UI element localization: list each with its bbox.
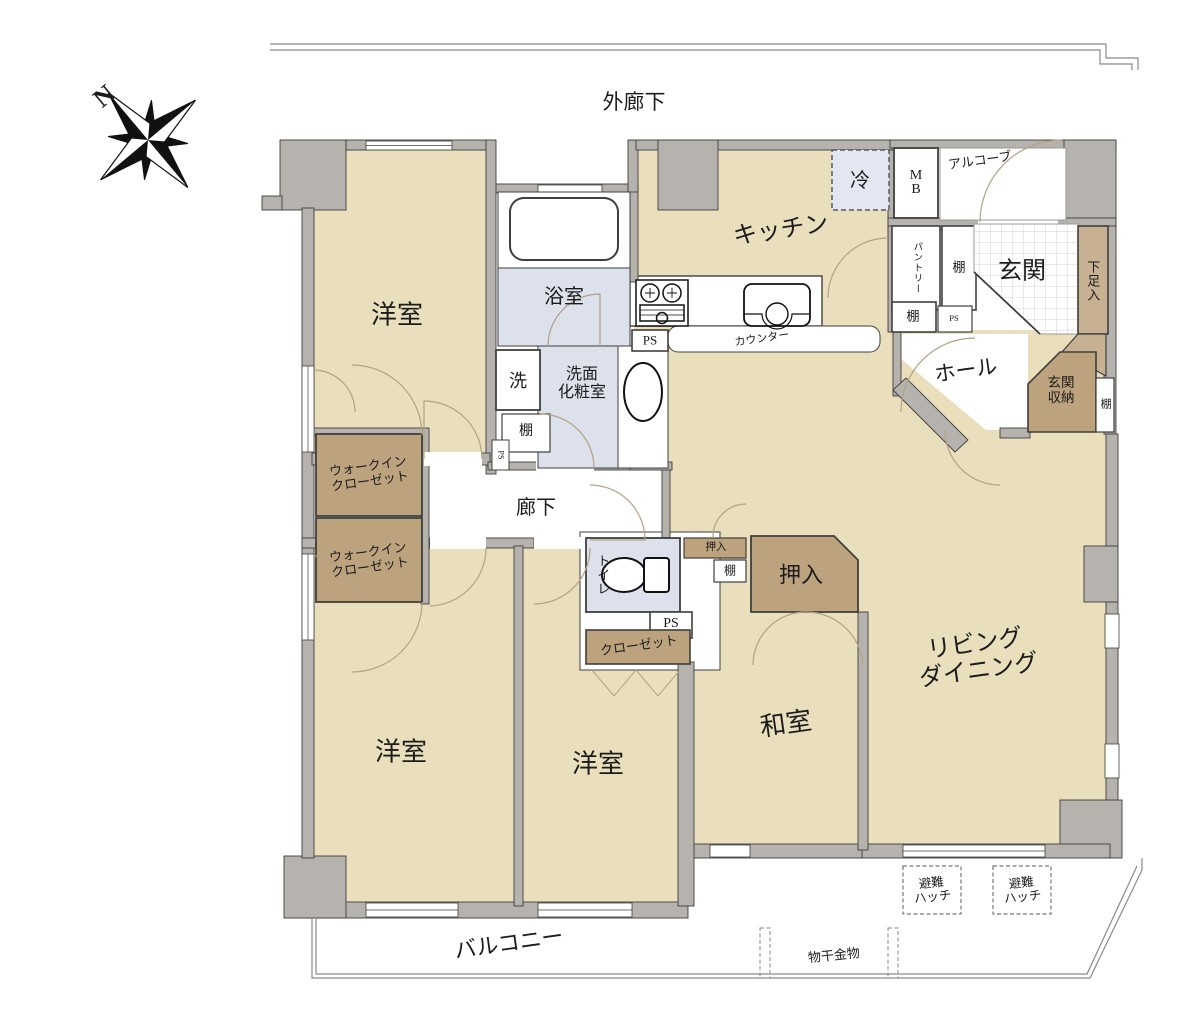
entrance-label: 玄関: [998, 259, 1046, 286]
bedroom1-label: 洋室: [371, 300, 423, 329]
compass-icon: [61, 53, 236, 228]
outer-corridor-label: 外廊下: [603, 91, 666, 115]
toilet-label: トイレ: [595, 554, 610, 596]
outer-corridor-line: [270, 44, 1138, 70]
storage-shelf-label: 棚: [1099, 398, 1111, 410]
bath-shelf-label: 棚: [519, 424, 533, 440]
escape-hatch1-label: 避難 ハッチ: [912, 874, 952, 906]
bedroom2-label: 洋室: [375, 737, 427, 766]
bedroom3-label: 洋室: [572, 749, 624, 778]
oshiire-big-label: 押入: [779, 564, 823, 589]
kitchen-ps-label: PS: [643, 334, 657, 349]
corridor-label: 廊下: [516, 497, 556, 519]
floorplan-drawing: [0, 0, 1200, 1025]
refrigerator-label: 冷: [850, 170, 870, 192]
entrance-storage-label: 玄関 収納: [1048, 375, 1075, 405]
pantry-shelf-label: 棚: [952, 261, 965, 276]
floorplan-page: N 外廊下 洋室 キッチン 冷 M B アルコーブ パントリー 棚 玄関 下足入…: [0, 0, 1200, 1025]
bath-ps-label: PS: [496, 451, 505, 460]
toilet-ps-label: PS: [663, 616, 679, 632]
small-shelf-label: 棚: [724, 564, 736, 577]
entry-ps-label: PS: [949, 314, 958, 324]
oshiire-small-label: 押入: [706, 542, 727, 554]
powder-room-label: 洗面 化粧室: [558, 366, 606, 402]
entry-shelf-label: 棚: [906, 310, 919, 325]
shoe-cabinet-label: 下足入: [1085, 260, 1100, 302]
washer-label: 洗: [509, 371, 527, 391]
escape-hatch2-label: 避難 ハッチ: [1002, 874, 1042, 906]
bathroom-label: 浴室: [544, 286, 584, 308]
pantry-label: パントリー: [911, 242, 922, 295]
meter-box-label: M B: [910, 169, 922, 197]
